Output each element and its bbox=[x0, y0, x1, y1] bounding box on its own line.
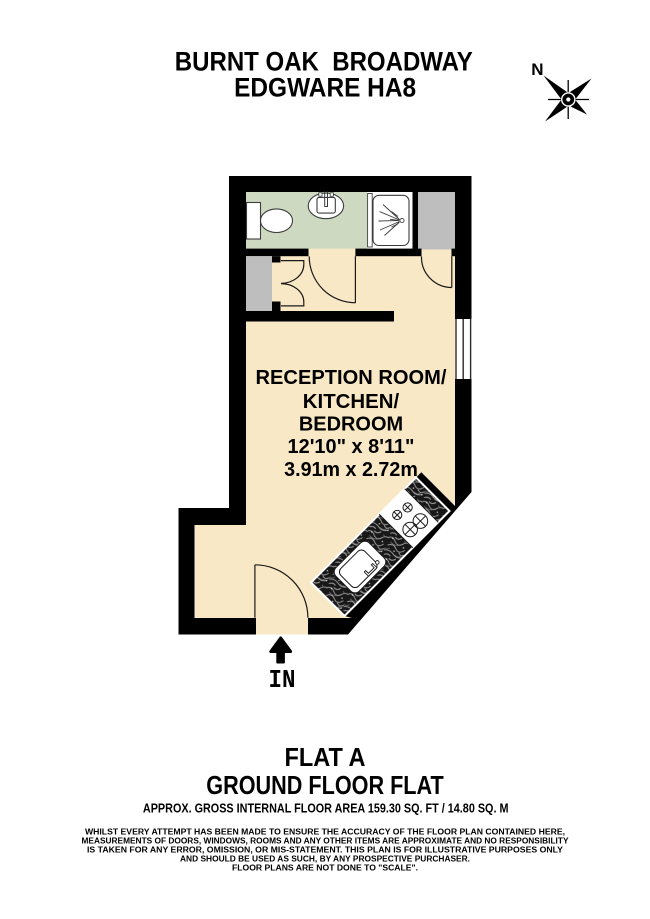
svg-text:12'10" x 8'11": 12'10" x 8'11" bbox=[288, 435, 415, 458]
svg-text:KITCHEN/: KITCHEN/ bbox=[303, 390, 400, 413]
svg-text:IN: IN bbox=[269, 665, 296, 695]
svg-text:EDGWARE HA8: EDGWARE HA8 bbox=[234, 73, 416, 103]
svg-text:FLOOR PLANS ARE NOT DONE TO "S: FLOOR PLANS ARE NOT DONE TO "SCALE". bbox=[232, 864, 418, 873]
svg-text:RECEPTION ROOM/: RECEPTION ROOM/ bbox=[256, 366, 447, 389]
svg-text:MEASUREMENTS OF DOORS, WINDOWS: MEASUREMENTS OF DOORS, WINDOWS, ROOMS AN… bbox=[82, 837, 570, 846]
svg-text:IS TAKEN FOR ANY ERROR, OMISSI: IS TAKEN FOR ANY ERROR, OMISSION, OR MIS… bbox=[87, 846, 564, 855]
svg-text:3.91m x 2.72m: 3.91m x 2.72m bbox=[284, 458, 418, 481]
svg-text:BEDROOM: BEDROOM bbox=[299, 413, 403, 436]
svg-text:GROUND FLOOR FLAT: GROUND FLOOR FLAT bbox=[206, 770, 444, 800]
svg-text:AND SHOULD BE USED AS SUCH, BY: AND SHOULD BE USED AS SUCH, BY ANY PROSP… bbox=[180, 855, 470, 864]
svg-text:FLAT A: FLAT A bbox=[285, 742, 366, 772]
svg-text:N: N bbox=[531, 60, 543, 79]
svg-text:WHILST EVERY ATTEMPT HAS BEEN: WHILST EVERY ATTEMPT HAS BEEN MADE TO EN… bbox=[85, 828, 565, 837]
svg-text:APPROX. GROSS INTERNAL FLOOR A: APPROX. GROSS INTERNAL FLOOR AREA 159.30… bbox=[143, 802, 509, 816]
